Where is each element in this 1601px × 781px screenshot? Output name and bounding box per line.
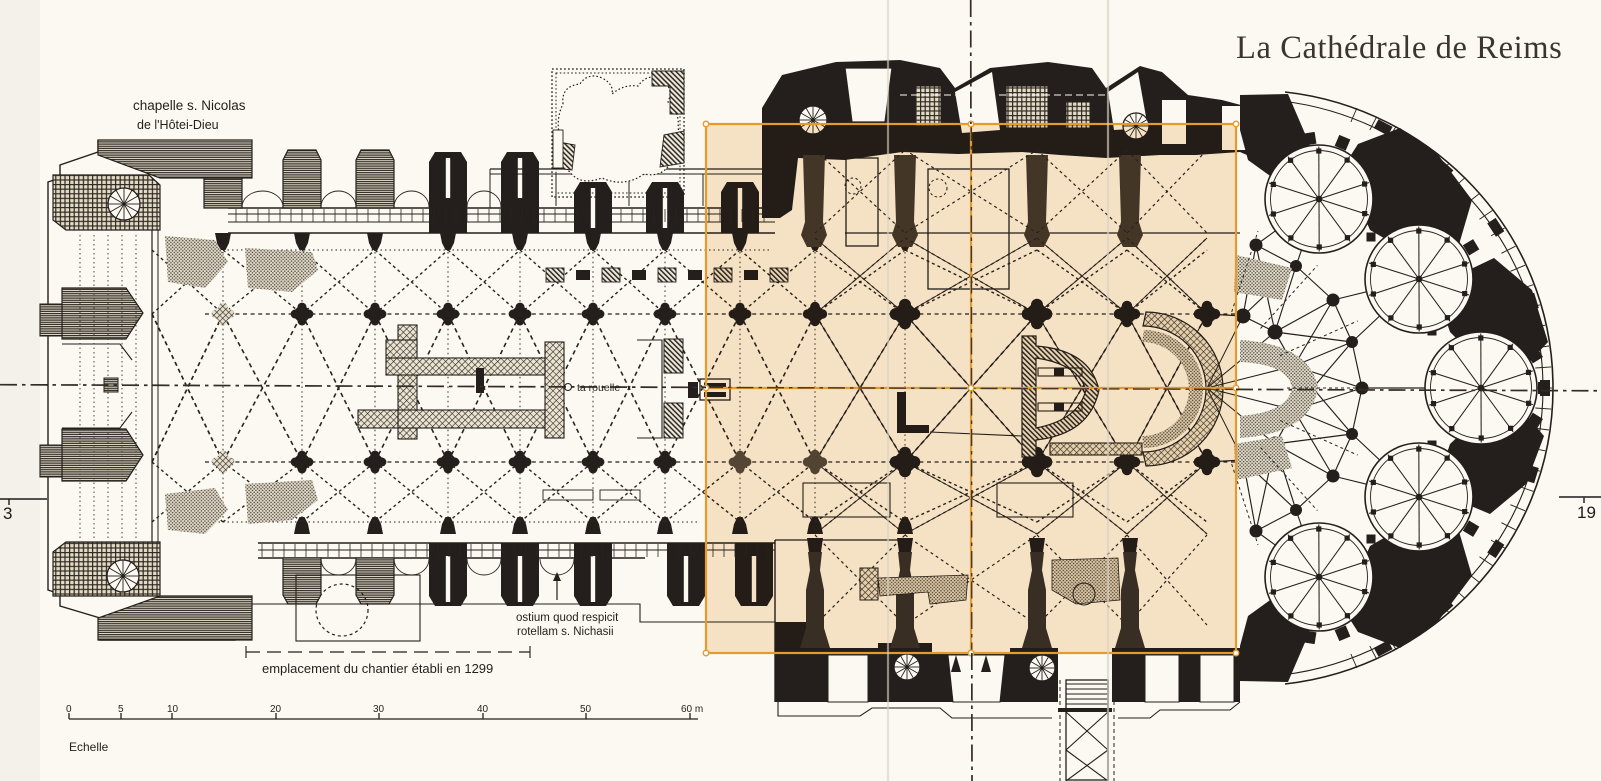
svg-text:3: 3 [3, 504, 12, 523]
svg-text:20: 20 [270, 704, 282, 715]
svg-text:rotellam s. Nichasii: rotellam s. Nichasii [517, 626, 614, 638]
svg-text:ostium quod respicit: ostium quod respicit [516, 612, 619, 624]
svg-text:0: 0 [66, 704, 72, 715]
svg-text:60 m: 60 m [681, 704, 703, 715]
svg-text:50: 50 [580, 704, 592, 715]
svg-text:19: 19 [1577, 503, 1596, 522]
svg-text:10: 10 [167, 704, 179, 715]
svg-text:La Cathédrale de Reims: La Cathédrale de Reims [1236, 30, 1562, 66]
svg-text:de l'Hôtei-Dieu: de l'Hôtei-Dieu [137, 118, 219, 132]
svg-text:Echelle: Echelle [69, 740, 109, 754]
svg-text:ta rouelle: ta rouelle [577, 382, 620, 394]
svg-text:emplacement du chantier éta: emplacement du chantier établi en 1299 [262, 661, 493, 676]
svg-text:chapelle s. Nicolas: chapelle s. Nicolas [133, 98, 246, 113]
svg-text:30: 30 [373, 704, 385, 715]
svg-text:5: 5 [118, 704, 124, 715]
svg-text:40: 40 [477, 704, 489, 715]
